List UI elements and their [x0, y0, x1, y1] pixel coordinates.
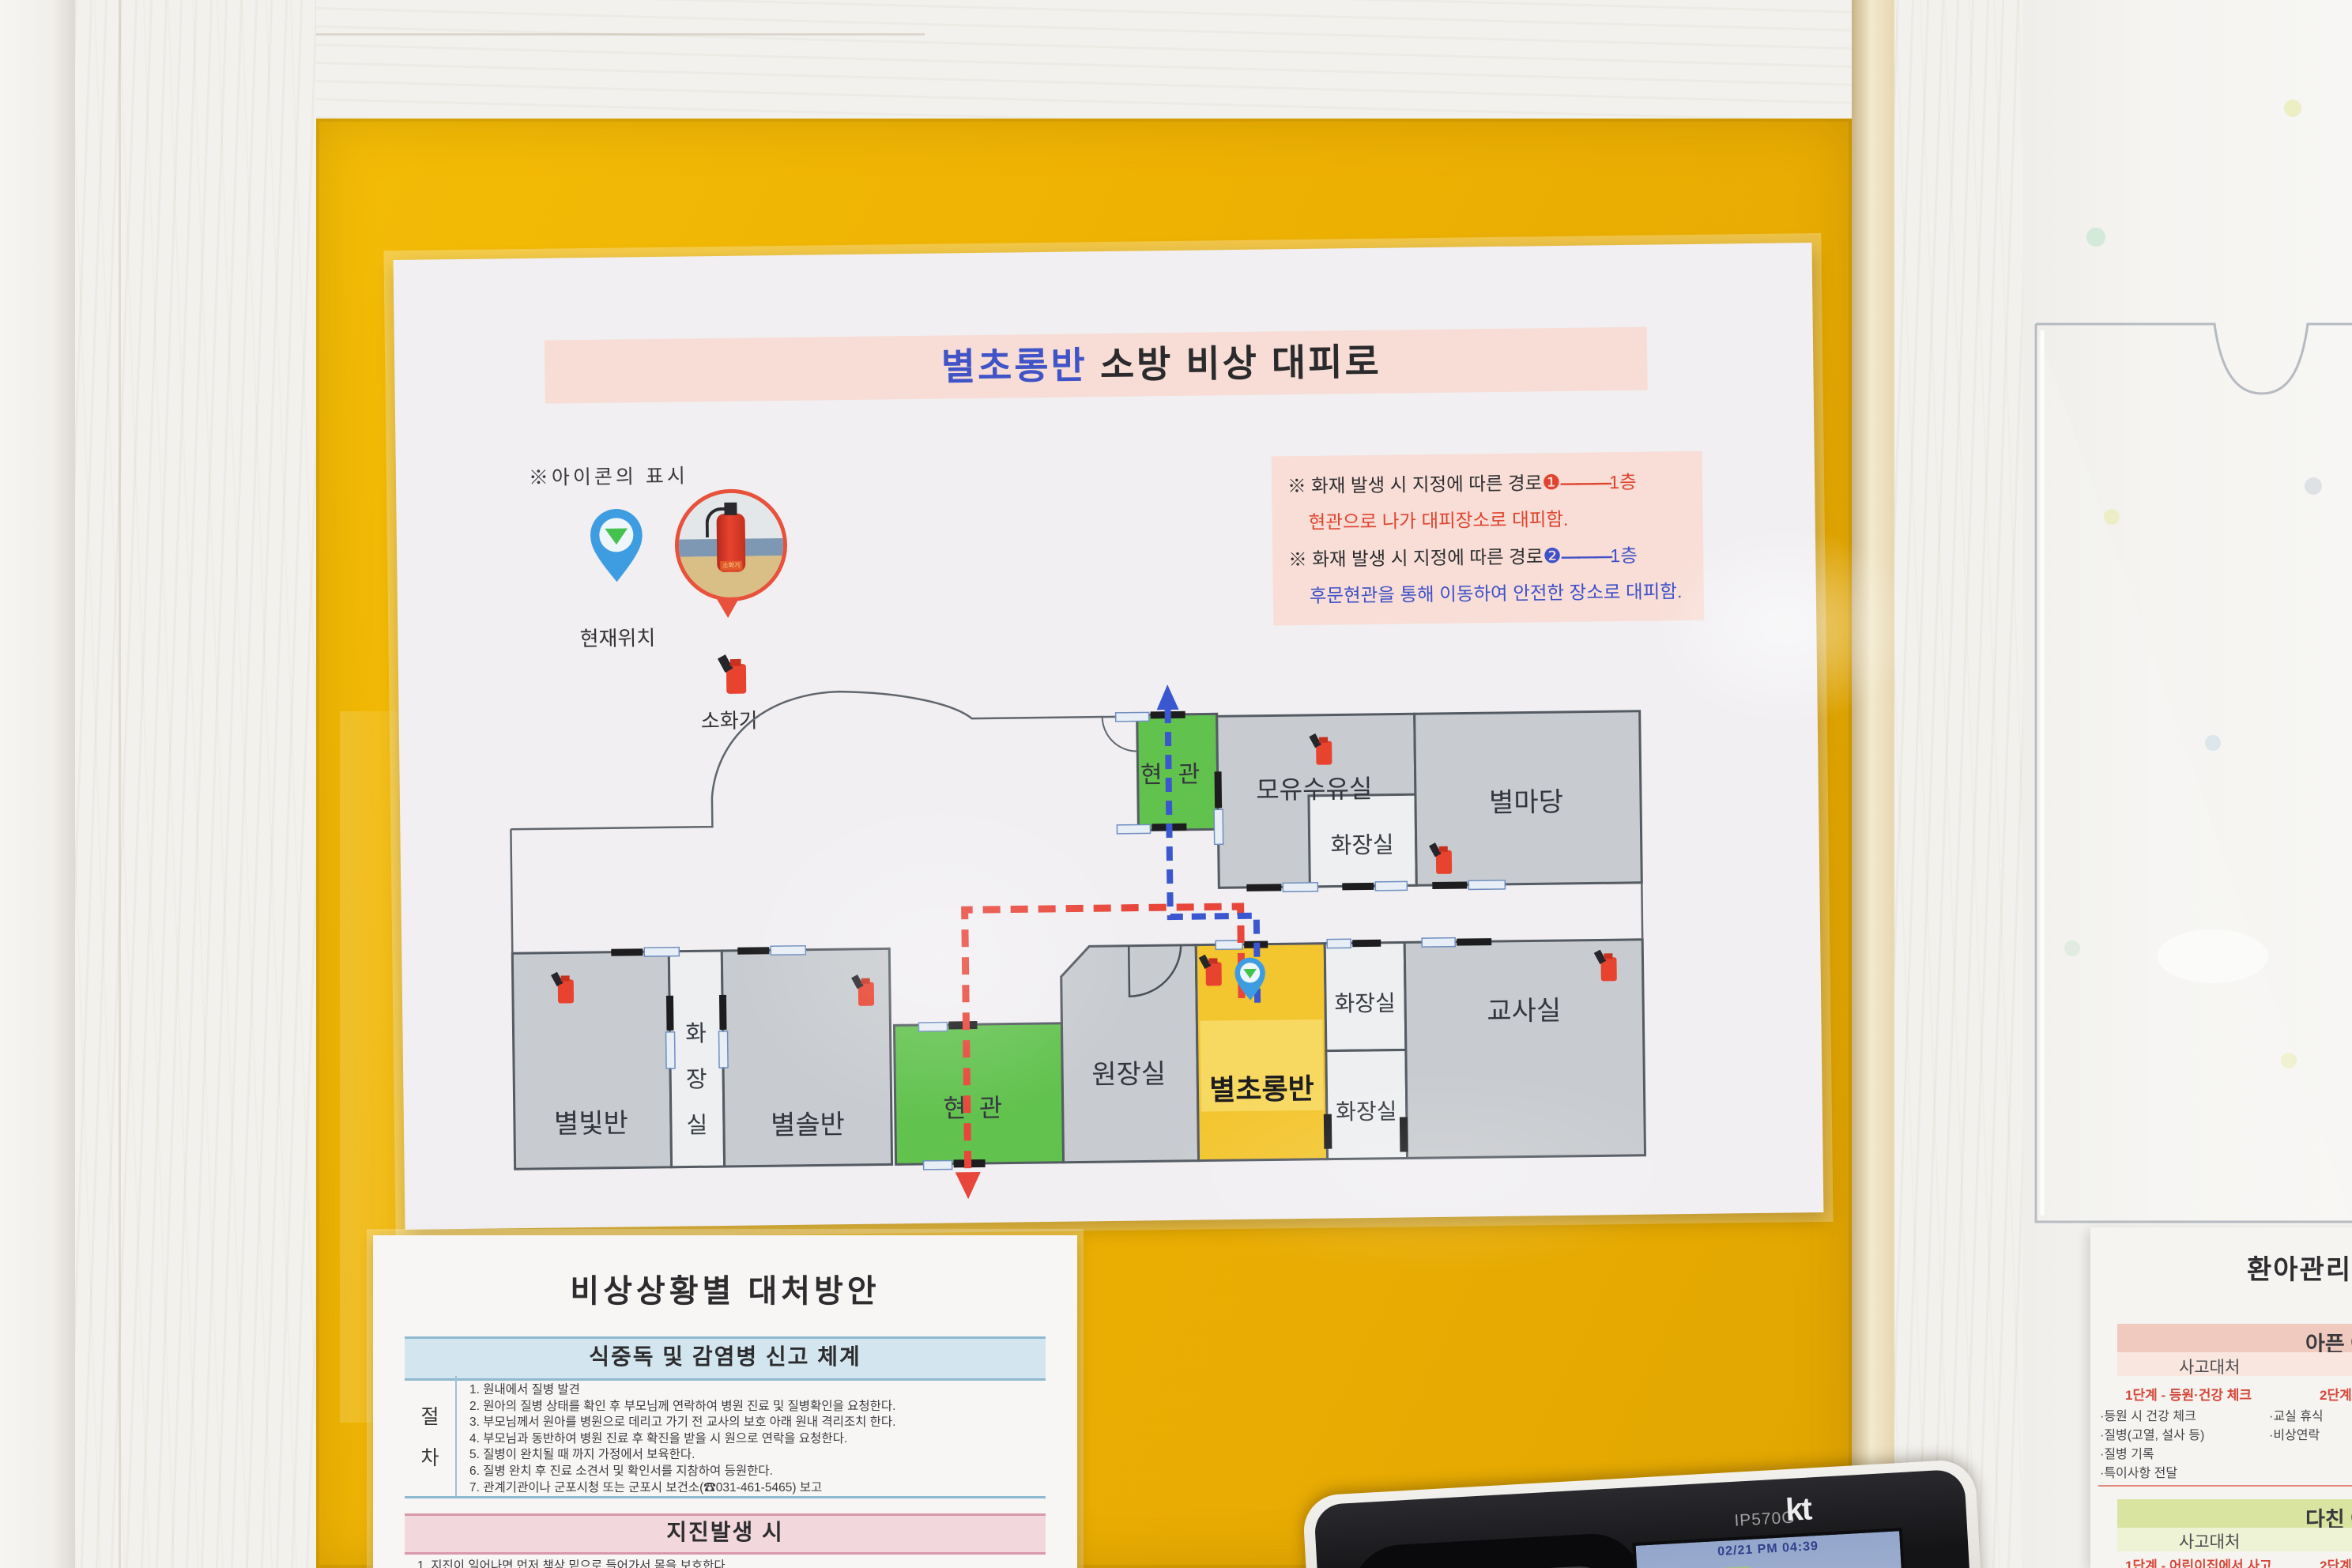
handset-cradle: [1349, 1532, 1649, 1568]
building-outline-left: [511, 829, 512, 953]
sick-child-banner: 아픈 아이: [2117, 1324, 2352, 1352]
procedure-item: 3. 부모님께서 원아를 병원으로 데리고 가기 전 교사의 보호 아래 원내 …: [469, 1415, 1046, 1431]
room-label: 별빛반: [554, 1108, 628, 1139]
door-frame-left-stile: [75, 0, 316, 1568]
room-label: 별마당: [1489, 787, 1563, 818]
room-label: 별초롱반: [1209, 1072, 1314, 1106]
route1-badge: ❶: [1542, 470, 1561, 494]
current-location-pin-icon: [582, 507, 650, 591]
floor-plan: 현관 모유수유실 화장실 별마당 별빛반 화 장 실 별솔반 현관 원장실 별초…: [497, 676, 1649, 1216]
wall-dot: [2284, 100, 2301, 117]
item: ·특이사항 전달: [2100, 1464, 2204, 1483]
side-label-char: 차: [420, 1442, 439, 1471]
procedure-table: 절 차 1. 원내에서 질병 발견 2. 원아의 질병 상태를 확인 후 부모님…: [405, 1376, 1046, 1498]
classroom-name: 별초롱반: [941, 344, 1088, 387]
building-outline-right: [1641, 883, 1642, 940]
route1-dash: ———: [1560, 472, 1609, 493]
step-label: 2단계 -: [2320, 1384, 2352, 1404]
circle-pointer: [716, 597, 740, 618]
route1-floor: 1층: [1609, 472, 1637, 492]
sick-right-items: ·교실 휴식 ·비상연락: [2269, 1408, 2324, 1445]
room-label: 현관: [1140, 761, 1216, 788]
procedure-item: 1. 원내에서 질병 발견: [469, 1382, 1046, 1399]
room-label: 별솔반: [771, 1110, 845, 1140]
procedure-item: 4. 부모님과 동반하여 병원 진료 후 확진을 받을 시 원으로 연락을 요청…: [469, 1431, 1046, 1448]
room-label: 교사실: [1487, 996, 1561, 1027]
note1-desc: 현관으로 나가 대피장소로 대피함.: [1287, 499, 1687, 541]
doc-title: 환아관리: [2247, 1248, 2352, 1287]
procedure-items: 1. 원내에서 질병 발견 2. 원아의 질병 상태를 확인 후 부모님께 연락…: [457, 1376, 1046, 1496]
injured-subheader-row: 사고대처 사고: [2117, 1528, 2352, 1551]
item: ·질병(고열, 설사 등): [2100, 1427, 2204, 1445]
injured-child-banner: 다친 아이: [2117, 1499, 2352, 1528]
sick-subheader-row: 사고대처 사고대: [2117, 1352, 2352, 1376]
emergency-procedures-document: 비상상황별 대처방안 식중독 및 감염병 신고 체계 절 차 1. 원내에서 질…: [373, 1235, 1077, 1568]
item: ·질병 기록: [2100, 1445, 2204, 1464]
procedure-item: 5. 질병이 완치될 때 까지 가정에서 보육한다.: [469, 1447, 1046, 1464]
screen-datetime: 02/21 PM 04:39: [1636, 1535, 1900, 1564]
route-notes-box: ※ 화재 발생 시 지정에 따른 경로❶———1층 현관으로 나가 대피장소로 …: [1272, 451, 1705, 626]
route2-floor: 1층: [1610, 545, 1638, 566]
left-wall: [0, 0, 75, 1568]
sick-items: ·등원 시 건강 체크 ·질병(고열, 설사 등) ·질병 기록 ·특이사항 전…: [2100, 1408, 2204, 1483]
route-1-arrowhead: [955, 1172, 981, 1199]
kt-logo: kt: [1785, 1491, 1811, 1528]
procedure-item: 6. 질병 완치 후 진료 소견서 및 확인서를 지참하여 등원한다.: [469, 1464, 1046, 1480]
note2-prefix: ※ 화재 발생 시 지정에 따른 경로: [1288, 546, 1543, 570]
step-label: 1단계 - 어린이집에서 사고: [2125, 1555, 2272, 1568]
section-header-foodpoisoning: 식중독 및 감염병 신고 체계: [405, 1336, 1046, 1381]
col-header: 사고대처: [2179, 1355, 2240, 1378]
current-location-label: 현재위치: [530, 621, 704, 653]
step-label: 2단계 - 병: [2320, 1555, 2352, 1568]
procedure-item: 7. 관계기관이나 군포시청 또는 군포시 보건소(☎031-461-5465)…: [469, 1480, 1046, 1497]
step-label: 1단계 - 등원·건강 체크: [2125, 1384, 2252, 1404]
room-label: 화장실: [1336, 1099, 1397, 1125]
poster-title: 별초롱반 소방 비상 대피로: [545, 327, 1648, 404]
route2-badge: ❷: [1543, 544, 1562, 567]
doc-title: 비상상황별 대처방안: [373, 1265, 1077, 1311]
procedure-side-label: 절 차: [405, 1376, 457, 1496]
route2-dash: ———: [1562, 545, 1611, 567]
room-label-char: 화: [685, 1021, 707, 1046]
earthquake-item: 1. 지진이 일어나면 먼저 책상 밑으로 들어가서 몸을 보호한다.: [417, 1556, 729, 1568]
extinguisher-stand-tag: 소화기: [720, 561, 742, 571]
procedure-item: 2. 원아의 질병 상태를 확인 후 부모님께 연락하여 병원 진료 및 질병확…: [469, 1399, 1046, 1415]
room-label: 현관: [943, 1093, 1015, 1122]
room-label: 화장실: [1334, 991, 1396, 1016]
acrylic-sign-holder: [2023, 261, 2352, 1233]
route-2-arrowhead: [1156, 684, 1178, 710]
section-header-earthquake: 지진발생 시: [405, 1513, 1046, 1555]
door-frame-top-rail: [316, 0, 1852, 119]
wall-dot: [2086, 228, 2105, 247]
room-label-char: 장: [686, 1067, 707, 1092]
room-label: 모유수유실: [1256, 775, 1373, 805]
note1-prefix: ※ 화재 발생 시 지정에 따른 경로: [1287, 473, 1542, 496]
extinguisher-photo-circle: 소화기: [674, 488, 788, 602]
item: ·등원 시 건강 체크: [2100, 1408, 2204, 1427]
room-label-char: 실: [686, 1113, 707, 1138]
extinguisher-valve: [724, 503, 737, 515]
divider: [2098, 1485, 2352, 1487]
room-label: 화장실: [1331, 833, 1394, 859]
patient-care-document: 환아관리 아픈 아이 사고대처 사고대 1단계 - 등원·건강 체크 2단계 -…: [2090, 1227, 2352, 1568]
wood-seam: [119, 0, 121, 1568]
door-frame-right-bevel: [1852, 0, 1894, 1568]
item: ·비상연락: [2269, 1427, 2324, 1445]
title-suffix: 소방 비상 대피로: [1087, 341, 1381, 386]
note2-desc: 후문현관을 통해 이동하여 안전한 장소로 대피함.: [1289, 573, 1689, 614]
legend-heading: ※아이콘의 표시: [529, 460, 688, 490]
evacuation-map-poster: 별초롱반 소방 비상 대피로 ※아이콘의 표시 현재위치 소화기 소화기: [394, 243, 1824, 1230]
col-header: 사고대처: [2179, 1529, 2240, 1553]
item: ·교실 휴식: [2269, 1408, 2324, 1427]
building-outline: [509, 688, 1138, 830]
photo-of-evacuation-notice-door: 별초롱반 소방 비상 대피로 ※아이콘의 표시 현재위치 소화기 소화기: [0, 0, 2352, 1568]
acrylic-glare: [2158, 929, 2268, 983]
side-label-char: 절: [420, 1401, 439, 1430]
room-label: 원장실: [1091, 1059, 1166, 1090]
wood-seam: [316, 33, 925, 36]
poster-title-banner: 별초롱반 소방 비상 대피로: [545, 327, 1648, 404]
